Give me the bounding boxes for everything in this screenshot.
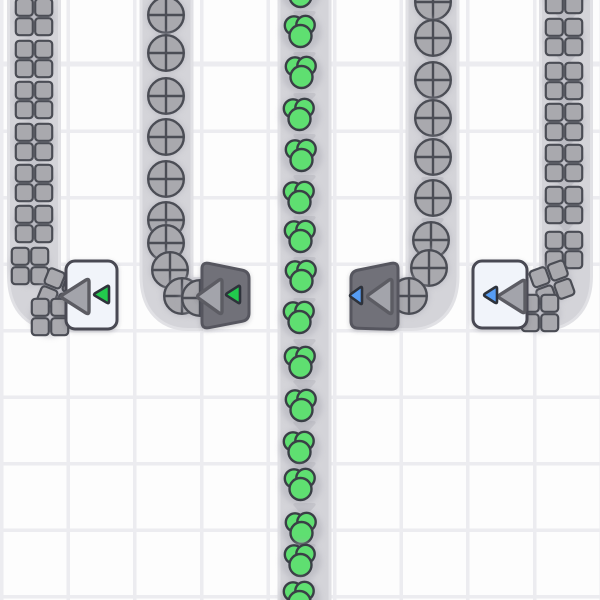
item-green-cluster	[281, 12, 321, 52]
item-square	[14, 0, 54, 37]
building-launcher-green[interactable]	[198, 263, 249, 328]
item-circle	[146, 33, 186, 73]
building-receiver-blue[interactable]	[473, 261, 527, 328]
item-square	[14, 80, 54, 120]
item-green-cluster	[280, 95, 320, 135]
item-green-cluster	[281, 343, 321, 383]
item-green-cluster	[280, 428, 320, 468]
item-square	[544, 185, 584, 225]
item-square	[14, 204, 54, 244]
item-square	[544, 17, 584, 57]
item-square	[14, 39, 54, 79]
item-square	[30, 297, 70, 337]
item-circle	[413, 18, 453, 58]
building-launcher-blue[interactable]	[350, 263, 398, 329]
item-green-cluster	[281, 541, 321, 581]
item-green-cluster	[280, 298, 320, 338]
item-circle	[146, 117, 186, 157]
item-circle	[413, 178, 453, 218]
item-circle	[413, 60, 453, 100]
game-canvas[interactable]	[0, 0, 600, 600]
item-circle	[146, 76, 186, 116]
item-square	[14, 163, 54, 203]
item-square	[14, 122, 54, 162]
item-circle	[146, 159, 186, 199]
item-green-cluster	[282, 386, 322, 426]
item-circle	[413, 137, 453, 177]
item-green-cluster	[280, 178, 320, 218]
item-green-cluster	[282, 53, 322, 93]
item-square	[544, 0, 584, 15]
item-circle	[413, 98, 453, 138]
item-square	[544, 61, 584, 101]
item-square	[544, 102, 584, 142]
item-green-cluster	[282, 257, 322, 297]
item-square	[544, 143, 584, 183]
game-viewport[interactable]	[0, 0, 600, 600]
item-green-cluster	[281, 465, 321, 505]
item-green-cluster	[281, 217, 321, 257]
building-receiver-green[interactable]	[62, 261, 117, 329]
item-green-cluster	[282, 136, 322, 176]
